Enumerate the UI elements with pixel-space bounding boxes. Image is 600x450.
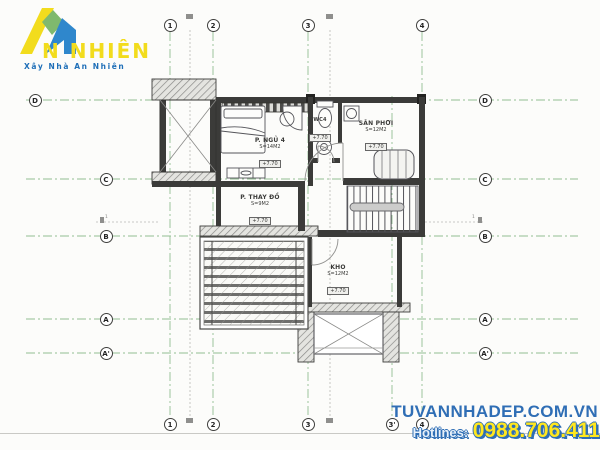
grid-bubble-rowA2-right: A' xyxy=(479,347,492,360)
section-mark-right: 1 xyxy=(472,215,475,220)
grid-bubble-col4-top: 4 xyxy=(416,19,429,32)
floor-plan-sheet: 1 2 3 4 1 2 3 3' 4 D C B A A' D C B A A'… xyxy=(0,0,600,450)
grid-bubble-col3-bottom: 3 xyxy=(302,418,315,431)
room-name: WC4 xyxy=(306,117,334,124)
room-name: P. NGỦ 4 xyxy=(246,137,294,144)
room-label-bedroom4: P. NGỦ 4 S=14M2 +7.70 xyxy=(246,137,294,169)
dresser xyxy=(227,168,265,178)
room-level-tag: +7.70 xyxy=(365,143,386,151)
grid-bubble-rowA-left: A xyxy=(100,313,113,326)
grid-bubble-rowC-right: C xyxy=(479,173,492,186)
room-level-tag: +7.70 xyxy=(259,160,280,168)
grid-bubble-rowB-right: B xyxy=(479,230,492,243)
grid-bubble-rowA2-left: A' xyxy=(100,347,113,360)
company-logo: N NHIÊN Xây Nhà An Nhiên xyxy=(8,4,158,74)
room-label-sanphoi: SÂN PHƠI S=12M2 +7.70 xyxy=(352,120,400,152)
grid-bubble-col1-top: 1 xyxy=(164,19,177,32)
grid-bubble-col2-bottom: 2 xyxy=(207,418,220,431)
room-level-tag: +7.70 xyxy=(327,287,348,295)
room-area: S=12M2 xyxy=(352,127,400,133)
logo-tagline-text: Xây Nhà An Nhiên xyxy=(24,62,125,71)
staircase xyxy=(347,186,418,232)
void-shaft-left xyxy=(160,100,216,172)
louver-terrace xyxy=(200,237,308,329)
grid-bubble-rowA-right: A xyxy=(479,313,492,326)
void-shaft-bottom xyxy=(314,314,383,354)
logo-brand-text: N NHIÊN xyxy=(42,40,151,62)
grid-bubble-col2-top: 2 xyxy=(207,19,220,32)
desk-and-chair xyxy=(280,106,302,130)
room-label-kho: KHO S=12M2 +7.70 xyxy=(316,264,360,296)
hotline-label: Hotlines: xyxy=(413,425,469,440)
grid-bubble-rowB-left: B xyxy=(100,230,113,243)
hotline-number: 0988.706.411 xyxy=(473,419,600,442)
room-area: S=12M2 xyxy=(316,271,360,277)
room-area: S=14M2 xyxy=(246,144,294,150)
room-label-thaydo: P. THAY ĐỒ S=9M2 +7.70 xyxy=(232,194,288,226)
washing-machine-icon xyxy=(344,106,359,121)
grid-bubble-col1-bottom: 1 xyxy=(164,418,177,431)
room-label-wc4: WC4 +7.70 xyxy=(306,117,334,143)
room-level-tag: +7.70 xyxy=(309,134,330,142)
section-mark-left: 1 xyxy=(105,215,108,220)
grid-bubble-rowD-left: D xyxy=(29,94,42,107)
room-name: P. THAY ĐỒ xyxy=(232,194,288,201)
room-name: KHO xyxy=(316,264,360,271)
room-name: SÂN PHƠI xyxy=(352,120,400,127)
grid-bubble-col3-top: 3 xyxy=(302,19,315,32)
grid-bubble-rowD-right: D xyxy=(479,94,492,107)
watermark-hotline: Hotlines: 0988.706.411 xyxy=(413,420,600,442)
room-area: S=9M2 xyxy=(232,201,288,207)
room-level-tag: +7.70 xyxy=(249,217,270,225)
grid-bubble-rowC-left: C xyxy=(100,173,113,186)
water-tank xyxy=(374,150,414,179)
